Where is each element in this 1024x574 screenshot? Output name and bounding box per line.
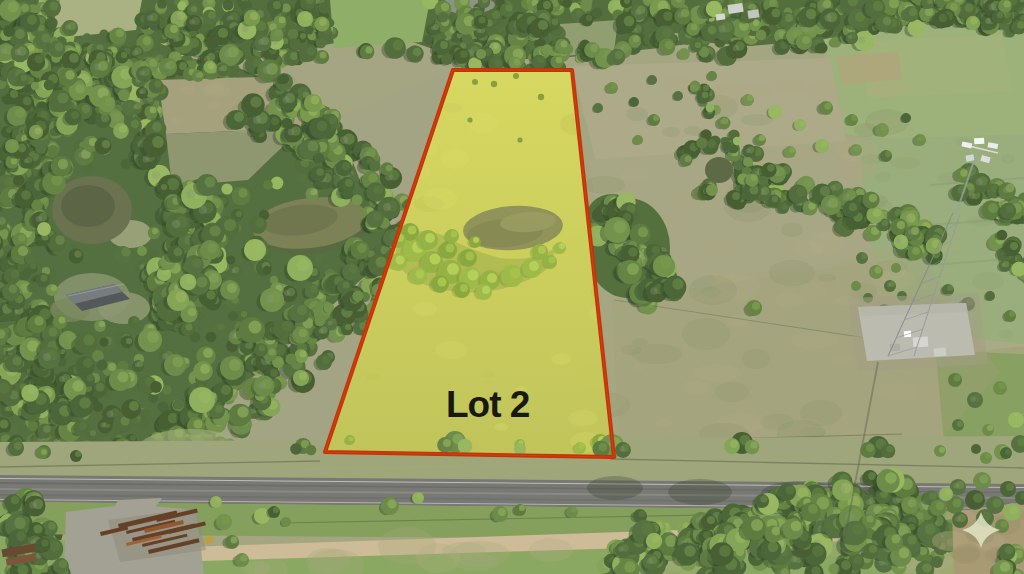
svg-text:Lot 2: Lot 2 <box>446 384 530 425</box>
